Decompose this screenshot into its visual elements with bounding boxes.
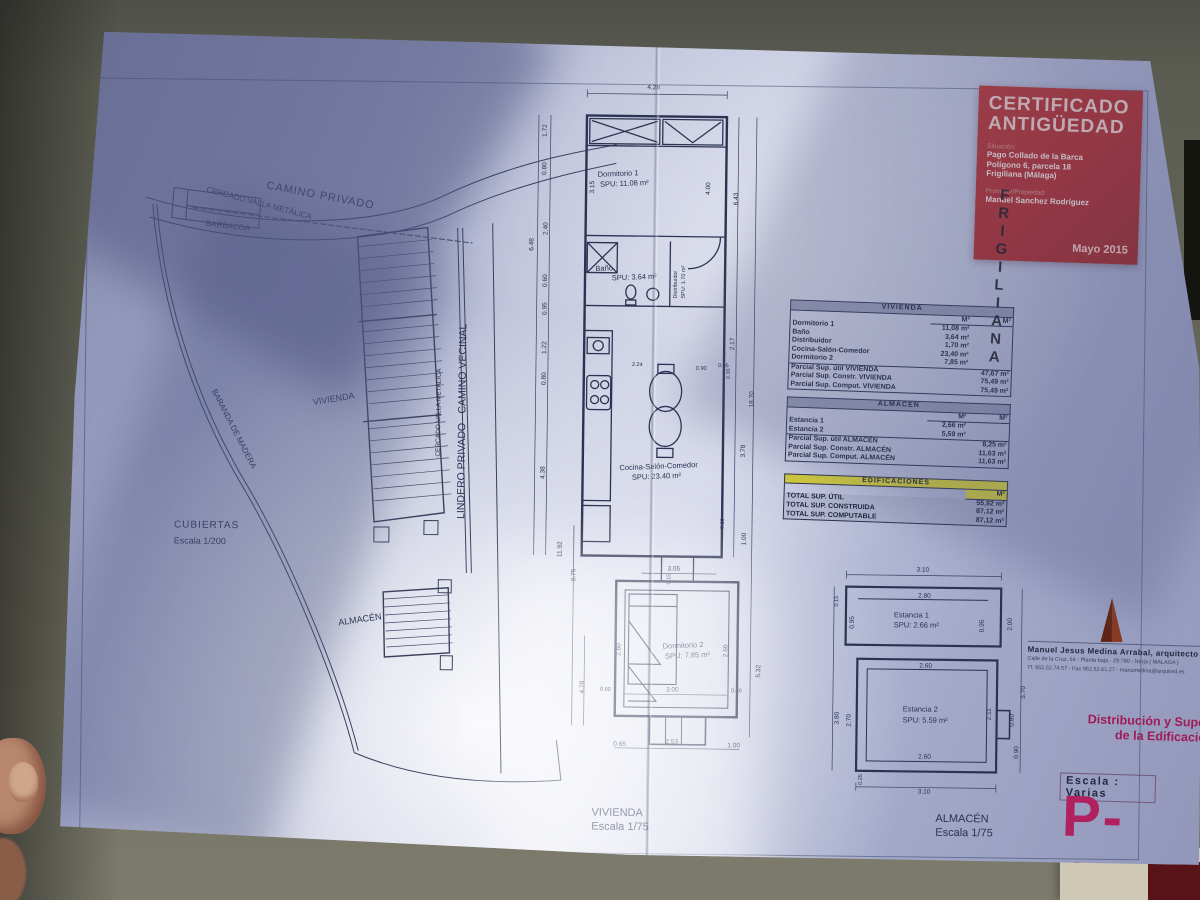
dim-label: 3.10 — [916, 566, 929, 573]
background-red-object — [1148, 862, 1200, 900]
vivienda-caption: VIVIENDA Escala 1/75 — [591, 806, 649, 835]
dim-label: 2.60 — [722, 644, 729, 657]
edificaciones-table: EDIFICACIONES M² TOTAL SUP. ÚTIL 55,92 m… — [783, 473, 1008, 527]
site-label-lindero: LINDERO PRIVADO - CAMINO VECINAL — [455, 323, 469, 519]
dim-label: 0.95 — [849, 616, 856, 629]
dim-label: 4.78 — [579, 680, 586, 693]
site-label-vivienda: VIVIENDA — [312, 390, 355, 407]
dim-label: 1.00 — [727, 742, 740, 749]
dim-label: 1.72 — [542, 124, 549, 137]
dim-label: 4.28 — [647, 84, 660, 91]
room-spu: SPU: 1.70 m² — [681, 265, 687, 298]
dim-label: 2.53 — [665, 738, 678, 745]
dim-label: 3.10 — [918, 789, 931, 796]
caption-escala: Escala 1/75 — [935, 826, 993, 841]
dim-label: 0.75 — [570, 568, 577, 581]
table-total-value: 75,49 m² — [969, 386, 1011, 396]
dim-label: 18.70 — [748, 391, 755, 408]
dim-label: 3.05 — [667, 565, 680, 572]
sheet-content: CAMINO PRIVADO CERCADO VALLA METÁLICA BA… — [63, 29, 1165, 854]
dim-label: 0.80 — [541, 162, 548, 175]
dim-label: 2.60 — [615, 643, 622, 656]
dim-label: 2.60 — [919, 663, 932, 670]
dim-label: 0.60 — [731, 688, 742, 694]
room-label: Estancia 1 — [894, 610, 929, 619]
dim-label: 0.80 — [541, 372, 548, 385]
dim-label: 2.24 — [632, 362, 643, 368]
dim-label: 2.17 — [729, 337, 736, 350]
architect-logo — [1098, 598, 1127, 644]
caption-escala: Escala 1/75 — [591, 820, 649, 835]
site-label-cercado-right: CERCADO VALLA METÁLICA — [433, 368, 443, 457]
dim-label: 0.95 — [979, 619, 986, 632]
dim-label: 3.15 — [589, 180, 596, 193]
dim-label: 2.80 — [918, 593, 931, 600]
dim-label: 0.25 — [858, 774, 864, 785]
caption-name: ALMACÉN — [935, 812, 993, 827]
room-spu: SPU: 7.85 m² — [665, 650, 711, 661]
plan-sheet-paper: CAMINO PRIVADO CERCADO VALLA METÁLICA BA… — [53, 23, 1200, 865]
dim-label: 0.95 — [542, 302, 549, 315]
room-spu: SPU: 3.64 m² — [612, 272, 658, 283]
dim-label: 11.92 — [557, 541, 564, 557]
room-label: Estancia 2 — [903, 704, 938, 713]
dim-label: 2.11 — [986, 708, 993, 721]
dim-label: 0.90 — [1013, 746, 1020, 759]
dim-label: 0.15 — [666, 574, 672, 585]
dim-label: 5.32 — [755, 664, 762, 677]
room-spu: SPU: 5.59 m² — [903, 715, 949, 725]
certificate-date: Mayo 2015 — [1072, 243, 1128, 257]
room-label: Cocina-Salón-Comedor — [619, 460, 698, 472]
dim-label: 2.40 — [543, 222, 550, 235]
dim-label: 0.60 — [600, 687, 611, 693]
hand-thumbnail — [8, 762, 38, 802]
dim-label: 6.43 — [733, 192, 740, 205]
dim-label: 2.00 — [1007, 618, 1014, 631]
dim-label: 2.60 — [918, 754, 931, 761]
room-spu: SPU: 23.40 m² — [632, 471, 682, 482]
site-label-almacen: ALMACÉN — [338, 611, 383, 627]
certificate-title-line2: ANTIGÜEDAD — [988, 114, 1133, 139]
dim-label: 0.65 — [613, 741, 626, 748]
dim-label: 3.80 — [834, 711, 841, 724]
room-label: Distribuidor — [673, 271, 679, 299]
drawing-title: Distribución y Superficies de la Edifica… — [1064, 712, 1200, 748]
table-row-value: 87,12 m² — [965, 516, 1007, 526]
dim-label: 0.60 — [542, 274, 549, 287]
photo-of-plan-sheet: GONZ — [0, 0, 1200, 900]
site-label-cubiertas: CUBIERTAS — [174, 519, 239, 531]
almacen-floor-plan: Estancia 1 SPU: 2.66 m² Estancia 2 SPU: … — [803, 558, 1046, 821]
site-label-cubiertas-escala: Escala 1/200 — [174, 535, 226, 546]
dim-label: 0.80 — [1009, 714, 1016, 727]
dim-label: 1.22 — [541, 341, 548, 354]
dim-label: 1.00 — [741, 532, 748, 545]
room-spu: SPU: 11.08 m² — [600, 178, 649, 189]
dim-label: 3.78 — [740, 444, 747, 457]
dim-label: 3.70 — [1020, 686, 1027, 699]
room-spu: SPU: 2.66 m² — [894, 620, 940, 630]
dim-label: 3.00 — [666, 686, 679, 693]
dim-label: 0.36 — [726, 368, 732, 379]
almacen-table: ALMACEN M² M² Estancia 1 2,66 m² Estanci… — [785, 396, 1011, 468]
dim-label: 0.90 — [696, 366, 707, 372]
dim-label: 7.80 — [720, 518, 726, 529]
dim-label: 6.48 — [528, 238, 535, 251]
room-label: Dormitorio 2 — [662, 640, 703, 651]
dim-label: 4.00 — [705, 182, 712, 195]
dim-label: 0.06 — [718, 363, 729, 369]
dim-label: 4.38 — [540, 466, 547, 479]
table-total-value: 11,63 m² — [967, 458, 1009, 468]
site-label-barbacoa: BARBACOA — [205, 219, 251, 233]
room-label: Baño — [595, 263, 613, 273]
dim-label: 2.70 — [846, 714, 853, 727]
dim-label: 0.15 — [834, 596, 840, 607]
room-label: Dormitorio 1 — [597, 168, 638, 179]
caption-name: VIVIENDA — [591, 806, 649, 821]
almacen-caption: ALMACÉN Escala 1/75 — [935, 812, 993, 841]
